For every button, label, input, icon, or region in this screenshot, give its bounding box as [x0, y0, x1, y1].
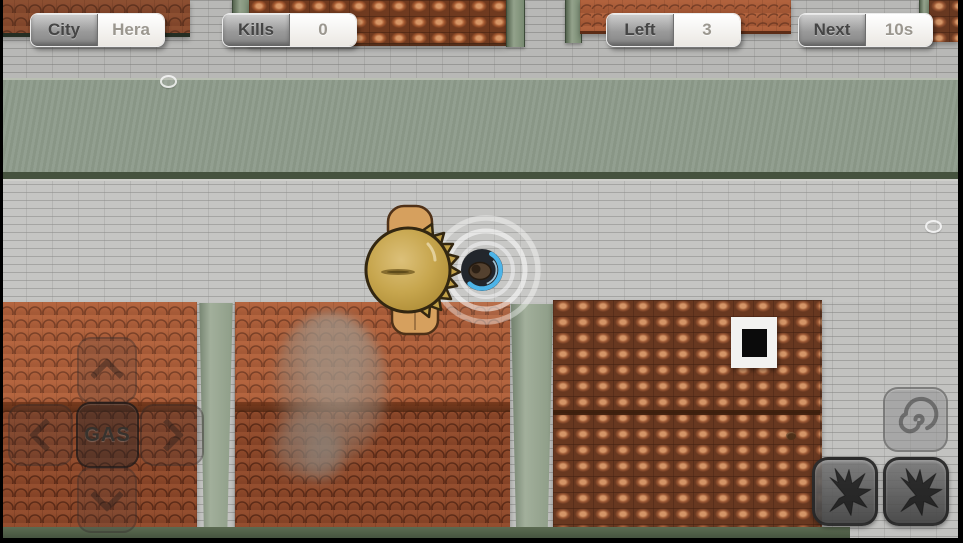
hud-left-pill: Left 3	[606, 13, 741, 47]
building-gap-wall	[510, 304, 553, 527]
hud-city-pill: City Hera	[30, 13, 165, 47]
grass-verge-shadow-edge	[0, 172, 963, 179]
hud-kills-value: 0	[290, 14, 356, 46]
curb-line	[0, 179, 963, 181]
crawler-icon	[886, 460, 946, 523]
hud-next-pill: Next 10s	[798, 13, 933, 47]
screen-frame-bottom	[0, 538, 963, 543]
hud-kills-pill: Kills 0	[222, 13, 357, 47]
chimney	[731, 317, 777, 368]
roof-ridge	[553, 410, 820, 415]
screen-frame-right	[958, 0, 963, 543]
player-character	[358, 198, 462, 338]
hud-left-value: 3	[674, 14, 740, 46]
smoke-puff	[300, 430, 345, 485]
game-screen: GAS City Hera Kills 0 Left 3 Next 10s	[0, 0, 963, 543]
spiral-ability-button[interactable]	[883, 387, 948, 452]
crawler-ability-button-right[interactable]	[883, 457, 949, 526]
pebble-icon	[925, 220, 942, 233]
chevron-right-icon	[150, 418, 184, 452]
grass-verge	[0, 78, 963, 174]
gas-button[interactable]: GAS	[76, 402, 139, 468]
hud-next-label: Next	[799, 14, 866, 46]
spiral-icon	[885, 389, 946, 450]
hud-kills-label: Kills	[223, 14, 290, 46]
screen-frame-left	[0, 0, 3, 543]
chevron-down-icon	[90, 478, 124, 512]
chimney-flue	[742, 329, 767, 357]
hud-next-value: 10s	[866, 14, 932, 46]
roof-debris	[786, 432, 796, 440]
pebble-icon	[160, 75, 177, 88]
chevron-up-icon	[90, 358, 124, 392]
dpad-right-button[interactable]	[140, 404, 204, 466]
dpad-left-button[interactable]	[8, 404, 73, 466]
dpad-up-button[interactable]	[77, 337, 137, 403]
hud-left-label: Left	[607, 14, 674, 46]
crawler-ability-button-left[interactable]	[812, 457, 878, 526]
gas-button-label: GAS	[84, 424, 130, 447]
hud-city-value: Hera	[98, 14, 164, 46]
hud-city-label: City	[31, 14, 98, 46]
chevron-left-icon	[28, 418, 62, 452]
crawler-icon	[815, 460, 875, 523]
dpad-down-button[interactable]	[77, 467, 137, 533]
rooftop-bottom-right	[553, 300, 822, 528]
building-trim	[506, 0, 525, 47]
rooftop-top-far-right	[929, 0, 958, 42]
